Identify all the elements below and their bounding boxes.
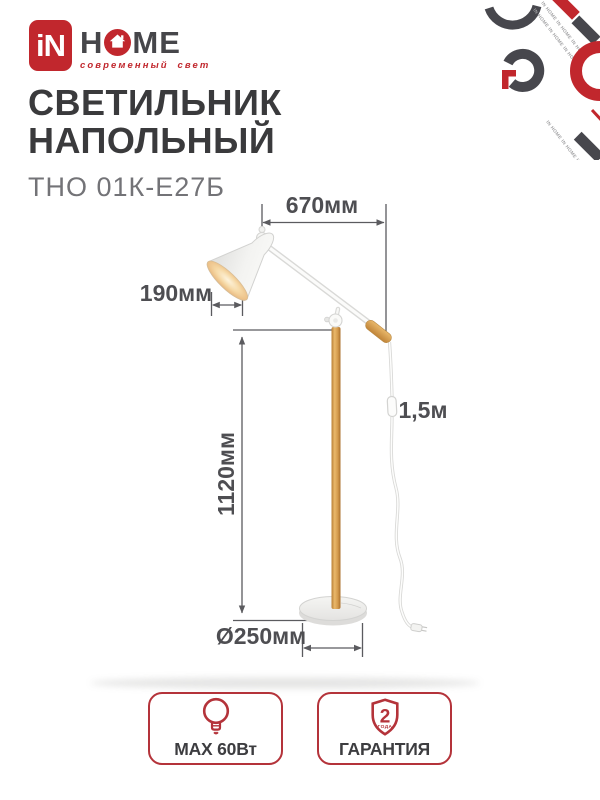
floor-shadow (90, 678, 480, 689)
max-wattage-badge: MAX 60Вт (148, 692, 283, 765)
dim-base-diameter: Ø250мм (216, 623, 306, 649)
bulb-icon (201, 697, 231, 738)
lamp-pole (332, 327, 341, 609)
shield-icon: 2 ГОДА (370, 698, 400, 738)
warranty-years-caption: ГОДА (377, 724, 392, 730)
dim-cord-length: 1,5м (399, 397, 448, 423)
power-plug (410, 623, 427, 633)
dim-shade-diameter: 190мм (140, 280, 212, 306)
badge-label-power: MAX 60Вт (174, 739, 257, 760)
floor-lamp-illustration (202, 215, 427, 632)
product-card: iN H ME современный свет IN HOME IN HOME… (0, 0, 600, 800)
badge-label-warranty: ГАРАНТИЯ (339, 739, 430, 760)
dim-arm-length: 670мм (286, 192, 358, 218)
dim-pole-height: 1120мм (213, 432, 239, 516)
cord-switch (387, 396, 397, 416)
feature-badges: MAX 60Вт 2 ГОДА ГАРАНТИЯ (148, 692, 452, 765)
lamp-shade (202, 215, 291, 305)
warranty-badge: 2 ГОДА ГАРАНТИЯ (317, 692, 452, 765)
arm-counterweight (364, 318, 394, 344)
power-cord (390, 342, 413, 627)
lamp-diagram: 670мм 190мм 1120мм Ø250мм 1,5м (0, 0, 600, 800)
